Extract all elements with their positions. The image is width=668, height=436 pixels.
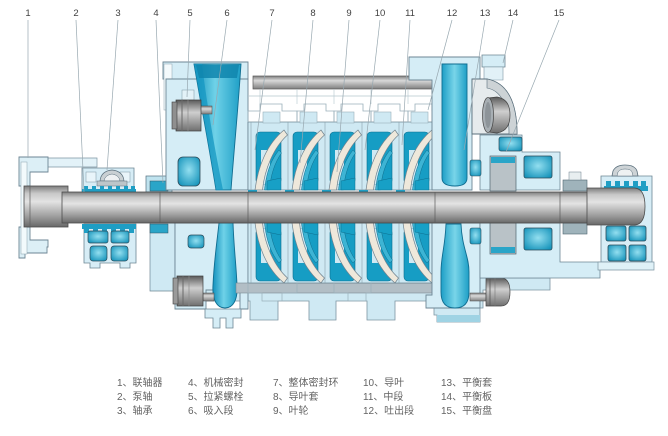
svg-text:12、吐出段: 12、吐出段	[363, 404, 414, 417]
svg-text:11、中段: 11、中段	[363, 390, 403, 403]
svg-text:10、导叶: 10、导叶	[363, 377, 404, 389]
svg-text:3、轴承: 3、轴承	[117, 404, 153, 417]
svg-text:12: 12	[447, 8, 458, 19]
svg-text:5: 5	[187, 8, 192, 19]
svg-text:7: 7	[269, 8, 274, 19]
svg-text:14、平衡板: 14、平衡板	[441, 390, 492, 403]
svg-text:8、导叶套: 8、导叶套	[273, 390, 319, 403]
svg-text:3: 3	[115, 8, 120, 19]
svg-text:6、吸入段: 6、吸入段	[188, 404, 234, 417]
svg-text:8: 8	[310, 8, 315, 19]
svg-text:10: 10	[375, 8, 386, 19]
svg-text:5、拉紧螺栓: 5、拉紧螺栓	[188, 390, 244, 403]
svg-text:1: 1	[25, 8, 30, 19]
svg-text:14: 14	[508, 8, 519, 19]
svg-text:2: 2	[73, 8, 78, 19]
svg-text:13: 13	[480, 8, 491, 19]
svg-text:15: 15	[554, 8, 565, 19]
svg-text:6: 6	[224, 8, 229, 19]
svg-text:7、整体密封环: 7、整体密封环	[273, 376, 339, 389]
svg-text:9: 9	[346, 8, 351, 19]
svg-text:2、泵轴: 2、泵轴	[117, 390, 153, 403]
svg-text:1、联轴器: 1、联轴器	[117, 376, 163, 389]
svg-text:9、叶轮: 9、叶轮	[273, 404, 309, 417]
svg-text:15、平衡盘: 15、平衡盘	[441, 404, 492, 417]
svg-text:4、机械密封: 4、机械密封	[188, 376, 244, 389]
svg-text:4: 4	[153, 8, 158, 19]
svg-text:13、平衡套: 13、平衡套	[441, 376, 492, 389]
svg-text:11: 11	[405, 8, 415, 19]
